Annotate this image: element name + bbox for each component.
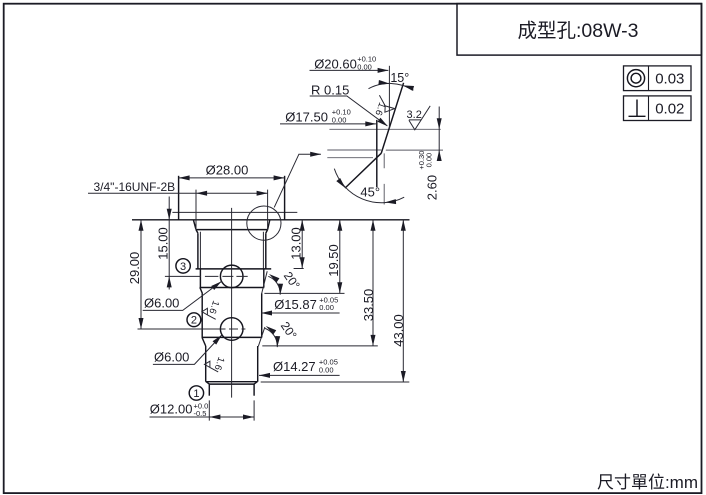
svg-text:1: 1 [193,388,199,400]
svg-text:3/4"-16UNF-2B: 3/4"-16UNF-2B [94,180,176,194]
svg-text:19.50: 19.50 [326,244,341,277]
svg-text:1.6: 1.6 [206,299,221,315]
svg-text:20°: 20° [278,319,300,342]
svg-text:Ø20.60: Ø20.60 [314,56,357,71]
svg-text:13.00: 13.00 [289,227,304,260]
svg-text:R 0.15: R 0.15 [311,83,349,98]
svg-text:43.00: 43.00 [391,314,406,347]
svg-text:15.00: 15.00 [156,227,171,260]
svg-text:-0.5: -0.5 [194,409,207,418]
svg-text:Ø6.00: Ø6.00 [144,295,179,310]
svg-text:15°: 15° [390,71,409,85]
svg-text:0.00: 0.00 [319,303,334,312]
svg-text:2.60: 2.60 [425,175,440,200]
svg-text:尺寸單位:mm: 尺寸單位:mm [597,473,698,492]
svg-text:Ø14.27: Ø14.27 [273,359,316,374]
svg-text:Ø15.87: Ø15.87 [274,297,317,312]
svg-text:0.00: 0.00 [319,365,334,374]
svg-text:20°: 20° [281,269,303,292]
svg-text:3.2: 3.2 [407,109,422,121]
svg-text:成型孔:08W-3: 成型孔:08W-3 [518,20,639,42]
svg-text:1.6: 1.6 [372,101,387,117]
svg-text:0.02: 0.02 [655,100,684,117]
svg-text:33.50: 33.50 [361,289,376,322]
svg-text:0.00: 0.00 [332,116,347,125]
svg-text:0.03: 0.03 [655,70,684,87]
svg-text:Ø17.50: Ø17.50 [285,109,328,124]
svg-text:0.00: 0.00 [425,153,434,168]
svg-text:29.00: 29.00 [127,252,142,285]
svg-text:Ø28.00: Ø28.00 [206,163,249,178]
svg-text:45°: 45° [360,185,380,200]
svg-text:3: 3 [180,261,186,273]
svg-text:2: 2 [191,315,197,327]
svg-text:Ø12.00: Ø12.00 [150,401,193,416]
svg-text:Ø6.00: Ø6.00 [154,349,189,364]
